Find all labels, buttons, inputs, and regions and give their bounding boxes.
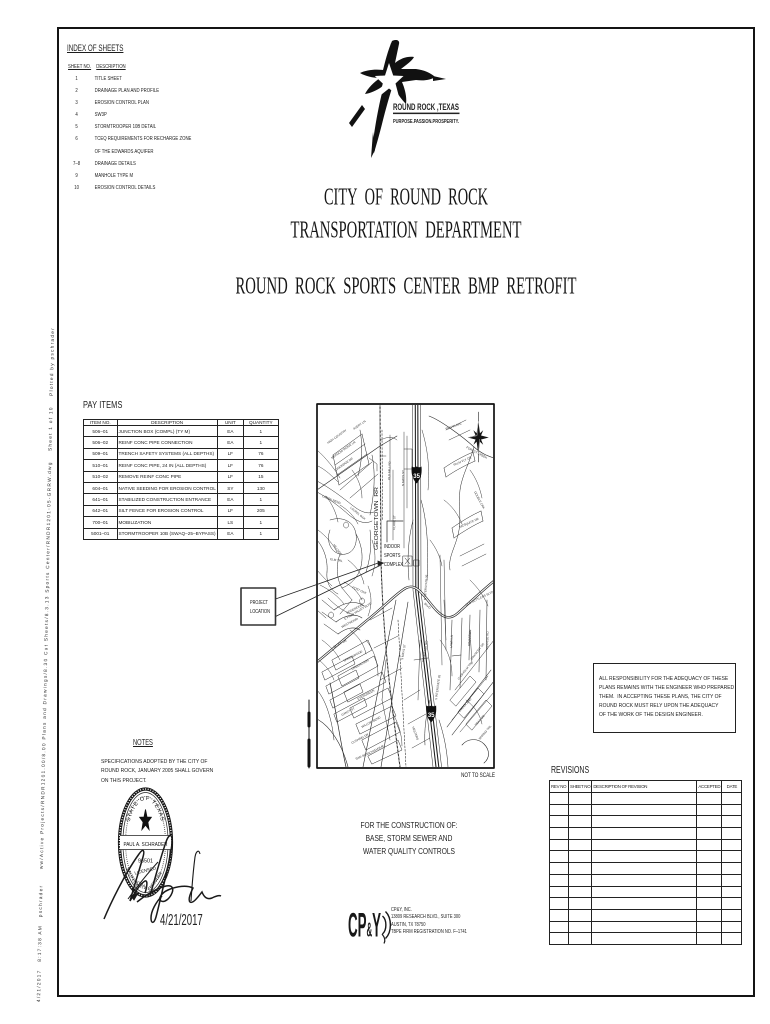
svg-text:LOCATION: LOCATION bbox=[250, 609, 270, 615]
svg-text:GANTT ST: GANTT ST bbox=[341, 706, 356, 717]
svg-text:SPRING TRL: SPRING TRL bbox=[478, 724, 493, 741]
svg-text:CHISHOLM: CHISHOLM bbox=[369, 744, 385, 755]
svg-text:PECAN AVE: PECAN AVE bbox=[445, 421, 462, 431]
svg-text:MESQUITE DR: MESQUITE DR bbox=[459, 516, 480, 528]
svg-text:CREEK BEND: CREEK BEND bbox=[322, 494, 342, 505]
svg-text:35: 35 bbox=[413, 474, 420, 480]
svg-text:N MAYS ST: N MAYS ST bbox=[401, 470, 405, 486]
svg-text:EVERGREEN: EVERGREEN bbox=[357, 689, 376, 701]
svg-text:NOT TO SCALE: NOT TO SCALE bbox=[461, 772, 495, 779]
svg-text:INDOOR: INDOOR bbox=[384, 544, 400, 550]
svg-text:ELM TRL: ELM TRL bbox=[330, 557, 343, 563]
svg-text:SPRINGWOOD: SPRINGWOOD bbox=[343, 649, 364, 663]
svg-text:N INTERSTATE 35: N INTERSTATE 35 bbox=[423, 574, 429, 600]
svg-text:BLUFF DR: BLUFF DR bbox=[333, 638, 349, 649]
svg-text:AVERY LN: AVERY LN bbox=[352, 419, 366, 431]
svg-text:HIGH COUNTRY: HIGH COUNTRY bbox=[326, 428, 347, 445]
svg-text:CLARK ST: CLARK ST bbox=[392, 515, 397, 530]
svg-text:LAUREL OAK: LAUREL OAK bbox=[349, 506, 366, 521]
svg-text:LAWN LN: LAWN LN bbox=[449, 635, 454, 648]
svg-text:HESTERS: HESTERS bbox=[411, 726, 420, 741]
svg-text:WILLOW BEND: WILLOW BEND bbox=[361, 715, 382, 729]
svg-text:GEORGETOWN RR: GEORGETOWN RR bbox=[374, 487, 380, 550]
svg-text:HILLSIDE: HILLSIDE bbox=[332, 543, 343, 556]
svg-text:S INTERSTATE 35: S INTERSTATE 35 bbox=[434, 674, 442, 700]
svg-text:POST OAK: POST OAK bbox=[352, 585, 368, 595]
svg-text:CP&Y: CP&Y bbox=[348, 907, 381, 945]
svg-text:OLD MILL RD: OLD MILL RD bbox=[387, 460, 392, 480]
svg-text:DOUBLE CRK: DOUBLE CRK bbox=[473, 491, 486, 510]
svg-text:SUNRISE RD: SUNRISE RD bbox=[485, 631, 490, 650]
svg-text:35: 35 bbox=[428, 713, 435, 719]
svg-text:CIMARRON: CIMARRON bbox=[467, 629, 472, 646]
svg-text:CHISHOLM TRL: CHISHOLM TRL bbox=[457, 660, 474, 680]
svg-text:ROUND ROCK SPORTS CENTER BMP R: ROUND ROCK SPORTS CENTER BMP RETROFIT bbox=[236, 273, 577, 300]
svg-text:COMPLEX: COMPLEX bbox=[384, 562, 403, 568]
svg-text:MEADOW RIDGE LN: MEADOW RIDGE LN bbox=[330, 440, 356, 460]
svg-text:SPORTS: SPORTS bbox=[384, 553, 401, 559]
svg-text:PROJECT: PROJECT bbox=[250, 600, 268, 606]
svg-text:CITY OF ROUND ROCK: CITY OF ROUND ROCK bbox=[324, 184, 488, 211]
svg-text:TRANSPORTATION DEPARTMENT: TRANSPORTATION DEPARTMENT bbox=[291, 217, 522, 244]
svg-text:OAKMONT DR: OAKMONT DR bbox=[470, 642, 486, 661]
